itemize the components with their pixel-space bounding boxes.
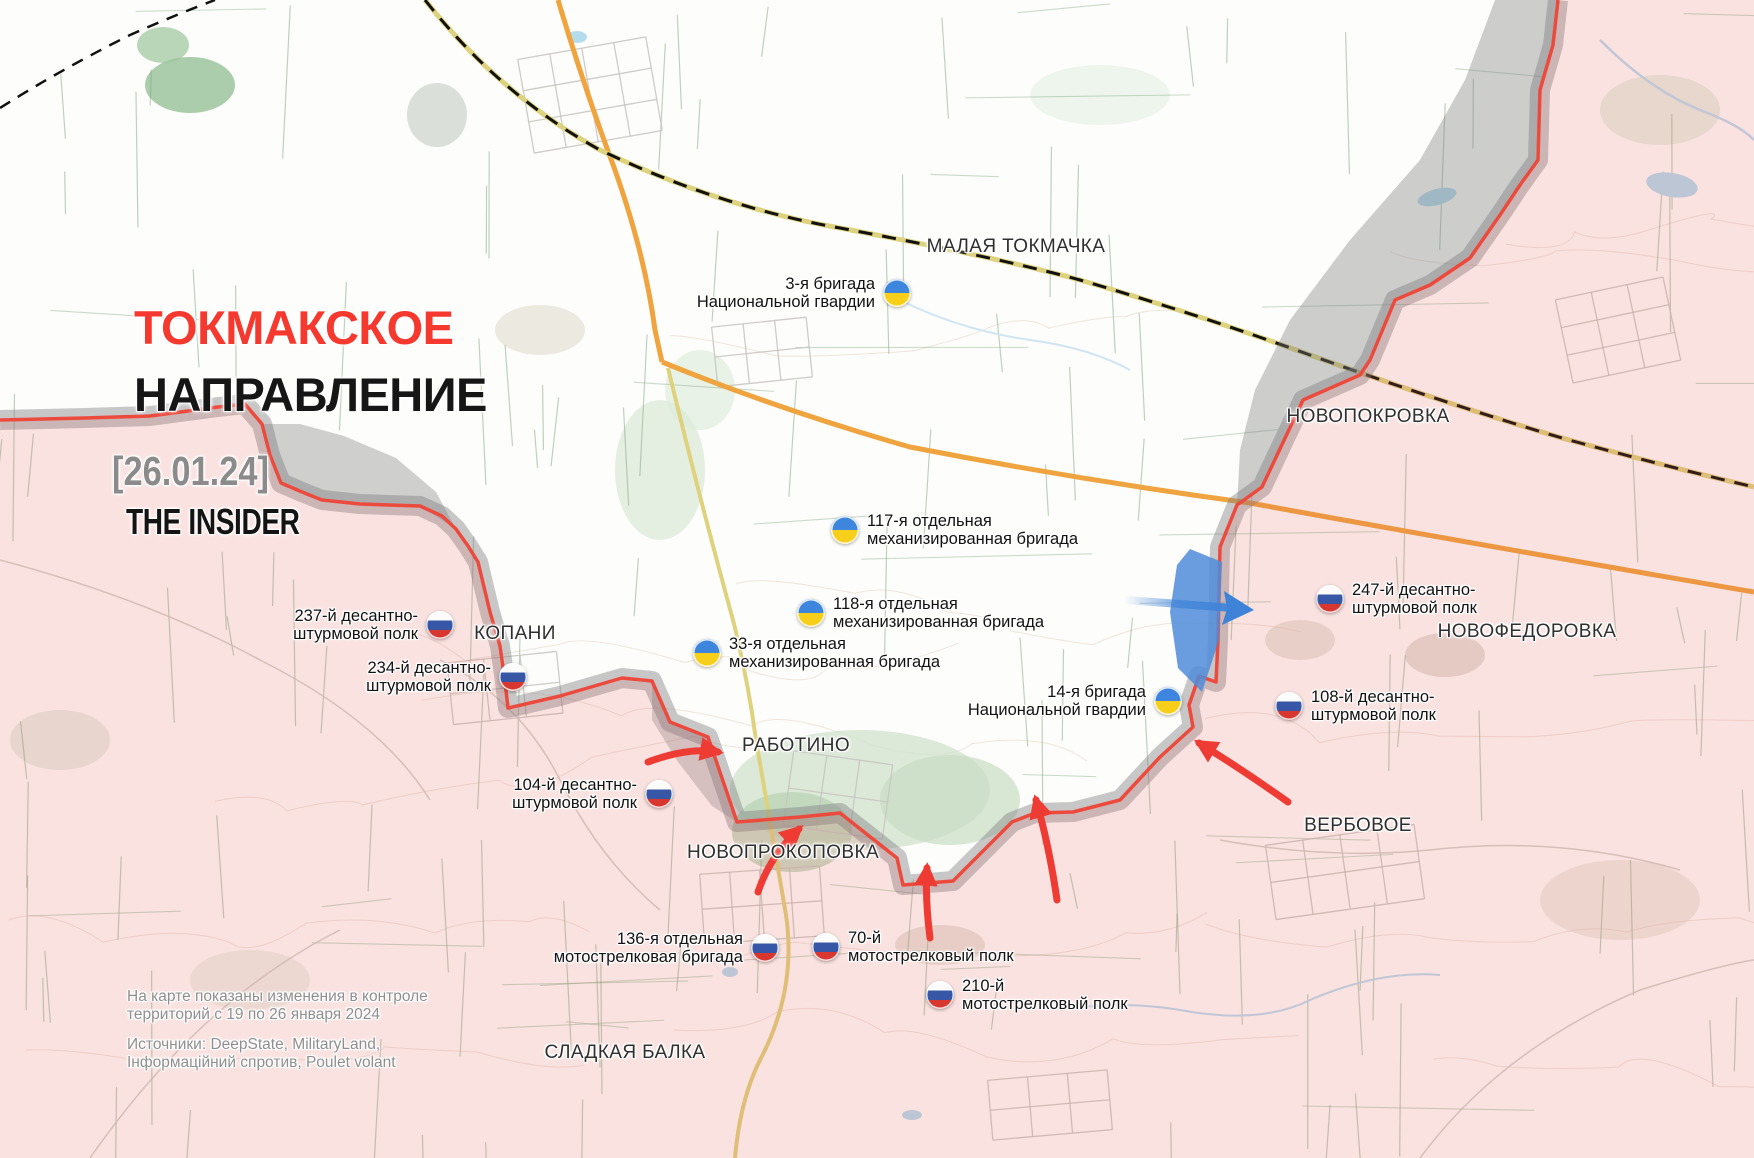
map-infographic: ТОКМАКСКОЕ НАПРАВЛЕНИЕ [26.01.24] THE IN…: [0, 0, 1754, 1158]
map-canvas: [0, 0, 1754, 1158]
attack-arrow-south-center: [926, 868, 930, 938]
